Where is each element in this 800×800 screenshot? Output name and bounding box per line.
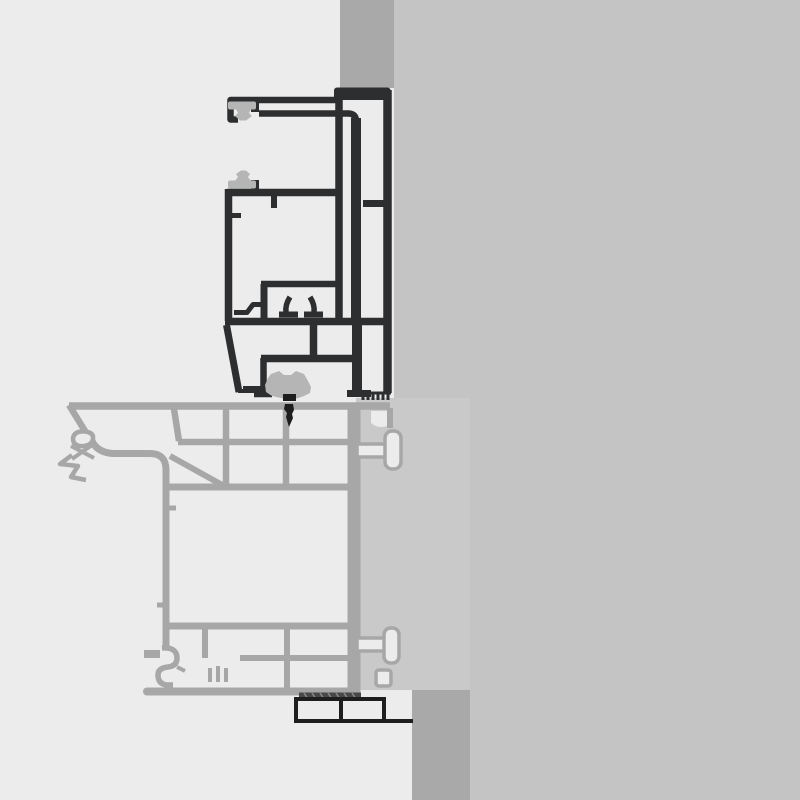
- background-gap-bottom: [394, 690, 412, 800]
- anchor-foot-pocket: [376, 670, 391, 686]
- gasket-top-flange: [228, 102, 256, 110]
- anchor-cap-upper: [385, 431, 401, 469]
- anchor-stem-lower: [357, 638, 386, 651]
- backgrounds: [0, 0, 800, 800]
- gasket-mid-flange: [228, 181, 256, 189]
- cross-section-drawing: [0, 0, 800, 800]
- gasket-base-notch: [283, 394, 296, 401]
- anchor-pocket: [371, 411, 387, 427]
- anchor-stem-upper: [357, 444, 387, 457]
- wall-strip-top: [340, 0, 394, 88]
- wall-block-bottom: [412, 690, 470, 800]
- anchor-cap-lower: [384, 628, 399, 663]
- technical-drawing-stage: [0, 0, 800, 800]
